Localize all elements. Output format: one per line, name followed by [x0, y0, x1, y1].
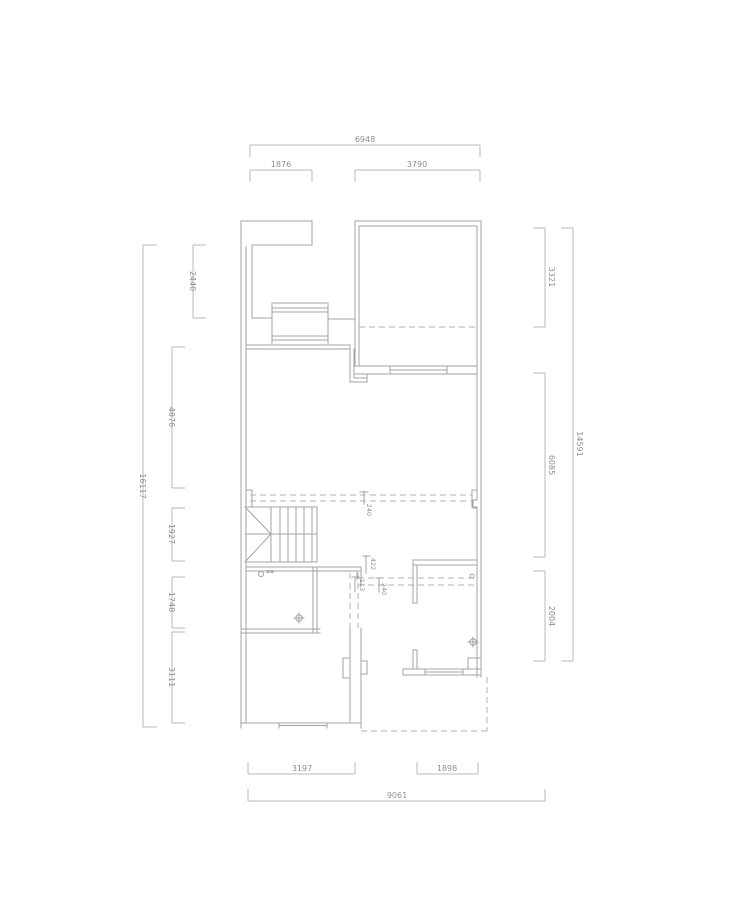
door-hinge-icon: [470, 574, 474, 578]
dim-left-seg5: 3111: [167, 667, 176, 687]
dim-right-overall: 14591: [575, 431, 584, 456]
stairs-symbol: [245, 507, 317, 562]
dim-right-seg1: 3321: [547, 267, 556, 287]
window-symbol-bottom-right: [425, 669, 463, 675]
dim-right-seg2: 6085: [547, 455, 556, 475]
dim-left-seg2: 4876: [167, 407, 176, 427]
dim-interior-beam-lower: 240: [380, 583, 388, 595]
window-symbol-bottom-left: [279, 723, 327, 728]
dim-interior-beam-upper: 240: [365, 504, 373, 516]
floor-plan-canvas: 6948 1876 3790 3197 1898 9061 16117 2440…: [0, 0, 740, 900]
dim-right-seg3: 2004: [547, 606, 556, 626]
dim-bottom-seg1: 3197: [292, 764, 312, 773]
floor-drain-icon: [294, 613, 304, 623]
dim-top-seg2: 3790: [407, 160, 427, 169]
dim-bottom-overall: 9061: [387, 791, 407, 800]
dim-left-seg1: 2440: [188, 271, 197, 291]
wardrobe-symbol: [272, 303, 328, 345]
dim-left-seg4: 1748: [167, 592, 176, 612]
wall-outline: [241, 221, 481, 728]
floor-plan-page: 6948 1876 3790 3197 1898 9061 16117 2440…: [0, 0, 740, 900]
dim-top-seg1: 1876: [271, 160, 291, 169]
dimension-lines: [143, 145, 573, 801]
terrace-dashed-outline: [361, 677, 487, 731]
dim-left-seg3: 1927: [167, 524, 176, 544]
dim-left-overall: 16117: [138, 473, 147, 498]
window-symbol-top: [390, 366, 447, 374]
dim-top-overall: 6948: [355, 135, 375, 144]
dim-interior-nib-offset: 113: [358, 579, 366, 591]
dim-interior-nib-width: 422: [369, 558, 377, 570]
dim-bottom-seg2: 1898: [437, 764, 457, 773]
